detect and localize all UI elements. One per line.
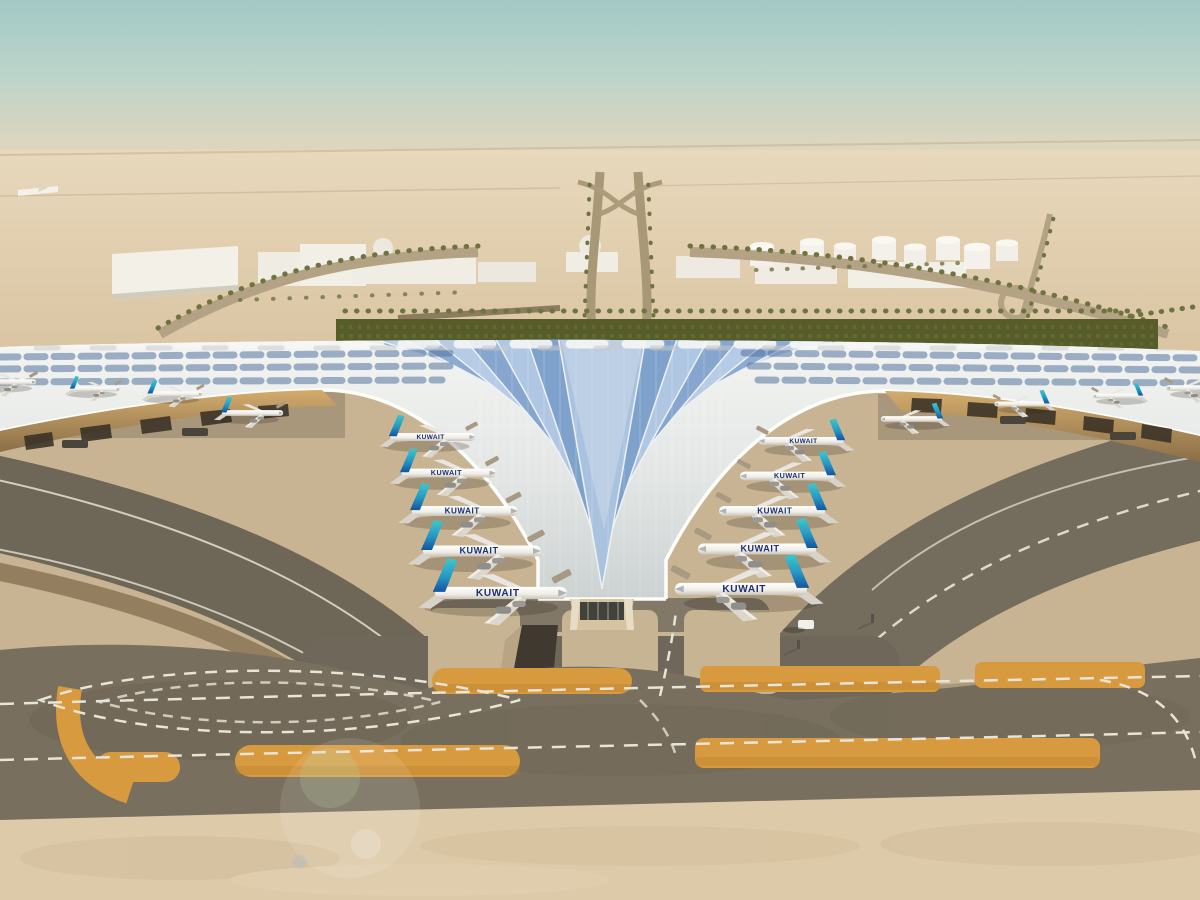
terminal-tip-entrance (570, 599, 634, 630)
airside-bus (1000, 416, 1026, 424)
aircraft-title: KUWAIT (417, 434, 445, 441)
support-building (676, 256, 740, 278)
aircraft-title: KUWAIT (789, 438, 817, 445)
storage-tank (996, 239, 1018, 261)
aircraft-title: KUWAIT (757, 506, 792, 515)
support-building (478, 262, 536, 282)
apron-light-post (871, 614, 874, 623)
airside-bus (1110, 432, 1136, 440)
lens-flare (280, 738, 420, 878)
aircraft-title: KUWAIT (740, 544, 779, 554)
aircraft-title: KUWAIT (722, 584, 766, 595)
storage-tank (964, 243, 990, 269)
storage-tank (872, 236, 896, 260)
apron-light-post (797, 640, 800, 649)
airside-bus (62, 440, 88, 448)
storage-tank (936, 236, 960, 260)
aircraft-title: KUWAIT (459, 546, 498, 556)
aircraft-title: KUWAIT (774, 471, 805, 480)
aircraft-title: KUWAIT (445, 506, 480, 515)
airside-bus (182, 428, 208, 436)
aircraft-title: KUWAIT (431, 468, 462, 477)
sky (0, 0, 1200, 172)
rendering-canvas: KUWAIT KUWAIT KUWAIT KUWAIT KUWAIT KUWAI… (0, 0, 1200, 900)
airport-aerial-rendering: KUWAIT KUWAIT KUWAIT KUWAIT KUWAIT KUWAI… (0, 0, 1200, 900)
aircraft-title: KUWAIT (476, 588, 520, 599)
storage-tank (904, 243, 926, 265)
